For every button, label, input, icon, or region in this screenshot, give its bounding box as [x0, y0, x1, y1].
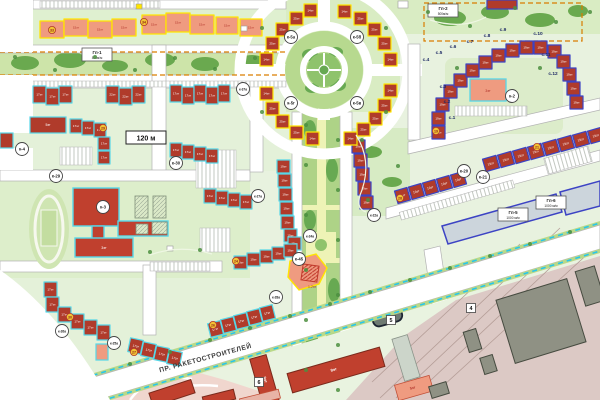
building-complex-sections-floors-label: 19эт — [482, 61, 489, 65]
unit-label-text: к-27а — [254, 195, 262, 199]
tree-icon — [53, 68, 57, 72]
building-complex-sections-floors-label: 19эт — [509, 49, 516, 53]
unit-label-text: к-5а — [287, 35, 296, 40]
building-floors-label: 3эт — [101, 246, 107, 250]
section-label: с.2 — [444, 99, 451, 105]
parking-label-gp2-title: Гп-2 — [438, 6, 448, 11]
unit-label-text: к-20 — [460, 169, 469, 174]
tree-icon — [336, 138, 340, 142]
sport-court — [135, 196, 148, 218]
roundabout-cluster-se-floors-label: 25эт — [372, 117, 379, 121]
unit-label-text: к-28а — [272, 296, 280, 300]
building-complex-sections-floors-label: 19эт — [495, 54, 502, 58]
building-row-17fl-floors-label: 17эт — [173, 148, 180, 152]
tree-icon — [554, 20, 558, 24]
building-row-17fl-floors-label: 17эт — [101, 142, 108, 146]
utility-box — [136, 4, 142, 9]
utility-box — [241, 26, 247, 31]
tree-icon — [588, 10, 592, 14]
tree-icon — [304, 368, 308, 372]
unit-label-text: к-45 — [295, 257, 304, 262]
tree-icon — [336, 293, 340, 297]
road — [143, 265, 156, 335]
park-canopy — [525, 13, 555, 27]
tree-icon — [148, 250, 152, 254]
park-canopy — [326, 158, 338, 182]
house-number-badge-text: 19 — [434, 129, 438, 133]
building-complex-sections-floors-label: 19эт — [447, 90, 454, 94]
parking-label-gp1-title: Гп-1 — [92, 50, 102, 55]
tree-icon — [426, 10, 430, 14]
building-row-17fl-floors-label: 17эт — [74, 320, 81, 324]
roundabout-cluster-se-floors-label: 14эт — [387, 89, 394, 93]
tree-icon — [528, 242, 532, 246]
building-row-17fl-floors-label: 17эт — [101, 156, 108, 160]
tree-icon — [513, 6, 517, 10]
building-row-15fl-floors-label: 15эт — [175, 21, 182, 25]
tree-icon — [455, 66, 459, 70]
building-row-17fl-floors-label: 17эт — [231, 198, 238, 202]
roundabout-cluster-nw-floors-label: 14эт — [263, 58, 270, 62]
roundabout-cluster-ne-floors-label: 25эт — [371, 28, 378, 32]
tree-icon — [336, 188, 340, 192]
building-kindergarten — [0, 133, 13, 148]
section-label: с.8 — [484, 33, 491, 39]
sport-court — [152, 222, 167, 234]
section-label: с.10 — [533, 31, 543, 37]
building-row-17fl-floors-label: 17эт — [36, 93, 43, 97]
roundabout-cluster-se-floors-label: 25эт — [381, 104, 388, 108]
house-number-badge-text: 33 — [50, 28, 54, 32]
tree-icon — [366, 198, 370, 202]
park-canopy — [328, 278, 340, 302]
building-row-17fl-floors-label: 17эт — [87, 326, 94, 330]
park-canopy — [54, 52, 86, 68]
building-row-17fl-floors-label: 17эт — [73, 124, 80, 128]
building-school-k3 — [73, 188, 119, 226]
unit-label-text: к-3 — [100, 205, 106, 210]
house-number-badge-text: 24 — [234, 259, 238, 263]
plaza-lawn — [315, 239, 327, 251]
building-row-17fl-floors-label: 17эт — [243, 200, 250, 204]
section-label: с.1 — [449, 115, 456, 121]
building-complex-sections-floors-label: 19эт — [570, 87, 577, 91]
building-utility — [96, 344, 108, 360]
map-edge — [0, 75, 33, 133]
house-number-badge-text: 27 — [132, 350, 136, 354]
unit-label-text: к-5в — [353, 101, 362, 106]
building-row-17fl-floors-label: 17эт — [49, 303, 56, 307]
roundabout-cluster-nw-floors-label: 25эт — [293, 17, 300, 21]
building-row-19fl-floors-label: 19эт — [281, 179, 288, 183]
tree-icon — [253, 56, 257, 60]
building-row-19fl-floors-label: 19эт — [275, 252, 282, 256]
building-row-19fl-floors-label: 19эт — [287, 249, 294, 253]
park-canopy — [102, 60, 128, 72]
building-row-17fl-floors-label: 17эт — [85, 126, 92, 130]
roundabout-cluster-ne-floors-label: 25эт — [357, 17, 364, 21]
building-row-22fl-floors-label: 22эт — [122, 95, 129, 99]
tree-icon — [304, 268, 308, 272]
tree-icon — [260, 110, 264, 114]
parking-label-gp5-title: Гп-5 — [508, 210, 518, 215]
building-row-17fl-floors-label: 17эт — [209, 154, 216, 158]
tree-icon — [304, 213, 308, 217]
tree-icon — [336, 238, 340, 242]
boulevard-path — [302, 205, 340, 210]
stadium-field — [41, 210, 57, 246]
building-school-k3 — [92, 226, 104, 239]
building-row-17fl-floors-label: 17эт — [62, 93, 69, 97]
roundabout-cluster-ne-floors-label: 25эт — [381, 42, 388, 46]
section-label: с.4 — [423, 57, 430, 63]
building-row-22fl-floors-label: 22эт — [109, 93, 116, 97]
scale-label: 120 м — [137, 136, 156, 143]
tree-icon — [133, 68, 137, 72]
building-row-22fl-floors-label: 22эт — [135, 93, 142, 97]
tree-icon — [208, 338, 212, 342]
building-complex-sections-floors-label: 19эт — [537, 46, 544, 50]
tree-icon — [468, 24, 472, 28]
building-complex-sections-floors-label: 19эт — [523, 46, 530, 50]
building-row-19fl-floors-label: 19эт — [280, 165, 287, 169]
building-row-15fl-floors-label: 15эт — [151, 23, 158, 27]
road — [318, 0, 330, 30]
building-row-17fl-floors-label: 17эт — [197, 92, 204, 96]
tree-icon — [260, 26, 264, 30]
tree-icon — [396, 164, 400, 168]
house-number-badge-text: 34 — [142, 20, 146, 24]
section-label: с.6 — [450, 44, 457, 50]
building-k45-hatched — [301, 264, 319, 282]
roundabout-cluster-nw-floors-label: 25эт — [279, 28, 286, 32]
unit-label-text: к-4 — [19, 147, 25, 152]
building-row-15fl-floors-label: 15эт — [121, 26, 128, 30]
roundabout-cluster-nw-floors-label: 25эт — [269, 42, 276, 46]
section-label: с.5 — [436, 50, 443, 56]
building-row-15fl-floors-label: 15эт — [248, 26, 255, 30]
building-row-19fl-floors-label: 19эт — [282, 193, 289, 197]
building-row-17fl-floors-label: 17эт — [185, 150, 192, 154]
building-row-17fl-floors-label: 17эт — [219, 196, 226, 200]
unit-label-text: к-29 — [52, 174, 61, 179]
building-complex-sections-floors-label: 19эт — [573, 101, 580, 105]
block-number-text: 4 — [470, 306, 473, 312]
building-row-17fl-floors-label: 17эт — [100, 331, 107, 335]
building-floors-label: 3эт — [485, 89, 491, 93]
house-number-badge-text: 30 — [68, 315, 72, 319]
building-row-19fl-floors-label: 19эт — [357, 159, 364, 163]
building-row-19fl-floors-label: 19эт — [283, 207, 290, 211]
tree-icon — [538, 66, 542, 70]
house-number-badge-text: 28 — [398, 196, 402, 200]
master-plan-map[interactable]: 9эт9эт5эт15эт15эт15эт15эт15эт15эт15эт15э… — [0, 0, 600, 400]
roundabout-center — [319, 65, 329, 75]
park-canopy — [382, 177, 402, 187]
tree-icon — [173, 56, 177, 60]
tree-icon — [336, 388, 340, 392]
parking-label-gp2-capacity: 500м/м — [438, 12, 449, 16]
unit-label-text: к-37а — [239, 88, 247, 92]
tree-icon — [568, 230, 572, 234]
building-row-15fl-floors-label: 15эт — [73, 26, 80, 30]
sport-court — [136, 224, 148, 234]
building-row-17fl-floors-label: 17эт — [49, 95, 56, 99]
building-row-19fl-floors-label: 19эт — [250, 258, 257, 262]
house-number-badge-text: 29 — [101, 126, 105, 130]
roundabout-cluster-se-floors-label: 25эт — [360, 128, 367, 132]
building-row-15fl-floors-label: 15эт — [224, 24, 231, 28]
building-row-15fl-floors-label: 15эт — [199, 23, 206, 27]
tree-icon — [384, 26, 388, 30]
tree-icon — [213, 67, 217, 71]
house-number-badge-text: 26 — [211, 323, 215, 327]
tree-icon — [168, 350, 172, 354]
building-partial — [487, 0, 517, 9]
building-floors-label: 1-2эт — [308, 285, 317, 289]
park-canopy — [568, 5, 588, 17]
parking-label-gp6-title: Гп-6 — [546, 198, 556, 203]
tree-icon — [248, 326, 252, 330]
section-label: с.12 — [548, 71, 558, 77]
tree-icon — [448, 266, 452, 270]
building-row-19fl-floors-label: 19эт — [284, 221, 291, 225]
section-label: с.3 — [440, 84, 447, 90]
building-complex-sections-floors-label: 19эт — [551, 50, 558, 54]
building-row-17fl-floors-label: 17эт — [207, 194, 214, 198]
unit-label-text: к-26а — [58, 330, 66, 334]
roundabout-cluster-sw-floors-label: 25эт — [269, 107, 276, 111]
roundabout-cluster-sw-floors-label: 14эт — [263, 92, 270, 96]
road — [408, 44, 420, 140]
roundabout-cluster-sw-floors-label: 25эт — [293, 131, 300, 135]
park-canopy — [304, 210, 316, 230]
section-label: с.9 — [500, 27, 507, 33]
unit-label-text: к-21 — [479, 175, 488, 180]
unit-label-text: к-25а — [110, 342, 118, 346]
section-label: с.7 — [467, 39, 474, 45]
unit-label-text: к-5г — [287, 101, 295, 106]
road — [318, 108, 330, 120]
master-plan-canvas: 9эт9эт5эт15эт15эт15эт15эт15эт15эт15эт15э… — [0, 0, 600, 400]
unit-label-text: к-5б — [353, 35, 362, 40]
building-complex-sections-floors-label: 19эт — [469, 69, 476, 73]
unit-label-text: к-24а — [306, 235, 314, 239]
tree-icon — [93, 55, 97, 59]
tree-icon — [304, 318, 308, 322]
building-complex-sections-floors-label: 19эт — [457, 79, 464, 83]
map-edge — [0, 0, 33, 52]
parking-label-gp5-capacity: 1000 м/м — [506, 216, 519, 220]
section-label: с.11 — [541, 52, 550, 58]
tree-icon — [13, 55, 17, 59]
road — [152, 45, 166, 173]
block-number-text: 6 — [258, 380, 261, 386]
roundabout-cluster-ne-floors-label: 14эт — [341, 10, 348, 14]
parking-lot — [455, 106, 527, 116]
tree-icon — [408, 278, 412, 282]
parking-lot — [150, 262, 210, 271]
tree-icon — [488, 254, 492, 258]
building-complex-sections-floors-label: 19эт — [560, 60, 567, 64]
building-row-15fl-floors-label: 15эт — [97, 28, 104, 32]
roundabout-cluster-nw-floors-label: 14эт — [307, 9, 314, 13]
tree-icon — [198, 248, 202, 252]
tree-icon — [304, 123, 308, 127]
unit-label-text: к-22а — [370, 214, 378, 218]
building-row-17fl-floors-label: 17эт — [47, 288, 54, 292]
building-floors-label: 5эт — [45, 123, 51, 127]
tree-icon — [328, 302, 332, 306]
building-row-19fl-floors-label: 19эт — [263, 255, 270, 259]
tree-icon — [360, 138, 364, 142]
tree-icon — [128, 362, 132, 366]
building-row-17fl-floors-label: 17эт — [173, 92, 180, 96]
roundabout-cluster-sw-floors-label: 25эт — [279, 120, 286, 124]
roundabout-cluster-sw-floors-label: 14эт — [309, 137, 316, 141]
roundabout-cluster-se-floors-label: 14эт — [347, 137, 354, 141]
utility-box — [398, 1, 408, 8]
building-row-17fl-floors-label: 17эт — [185, 94, 192, 98]
building-complex-sections-floors-label: 19эт — [435, 117, 442, 121]
tree-icon — [368, 290, 372, 294]
parking-label-gp6-capacity: 1000 м/м — [544, 204, 557, 208]
tree-icon — [288, 314, 292, 318]
parking-lot — [200, 228, 230, 252]
building-row-17fl-floors-label: 17эт — [209, 94, 216, 98]
house-number-badge-text: 21 — [535, 145, 539, 149]
unit-label-text: к-2 — [509, 94, 515, 99]
parking-lot — [60, 147, 92, 165]
building-row-17fl-floors-label: 17эт — [221, 92, 228, 96]
block-number-text: 5 — [390, 318, 393, 324]
tree-icon — [304, 163, 308, 167]
roundabout-cluster-ne-floors-label: 14эт — [387, 58, 394, 62]
building-row-17fl-floors-label: 17эт — [197, 152, 204, 156]
building-complex-sections-floors-label: 19эт — [566, 73, 573, 77]
unit-label-text: к-30 — [172, 161, 181, 166]
tree-icon — [384, 110, 388, 114]
sport-court — [153, 196, 166, 218]
tree-icon — [336, 343, 340, 347]
